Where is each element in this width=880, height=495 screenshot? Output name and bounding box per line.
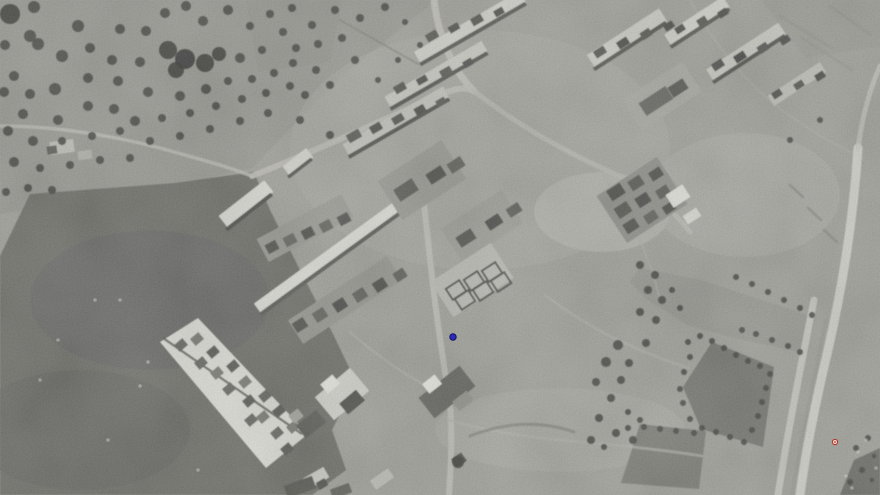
red-poi-marker-dot xyxy=(834,441,836,443)
aerial-photo-image xyxy=(0,0,880,495)
red-poi-marker[interactable] xyxy=(832,439,837,444)
film-grain-overlay xyxy=(0,0,880,495)
blue-location-marker[interactable] xyxy=(450,334,456,340)
aerial-photo-viewport[interactable] xyxy=(0,0,880,495)
